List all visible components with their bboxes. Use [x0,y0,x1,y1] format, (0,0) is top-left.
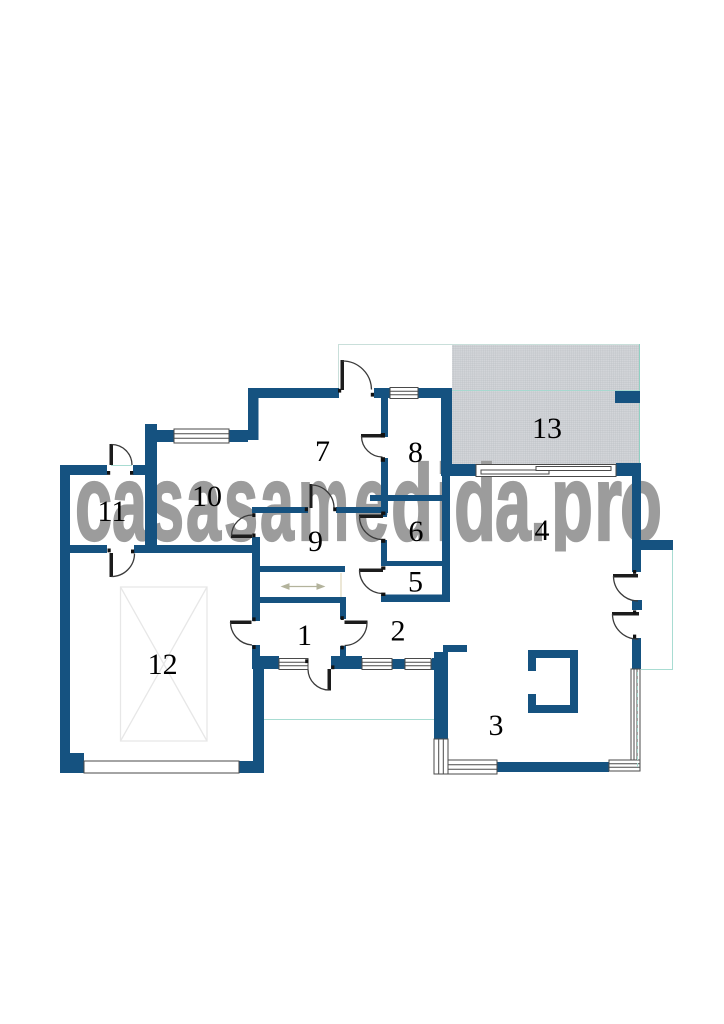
svg-text:2: 2 [391,615,406,648]
svg-text:7: 7 [315,435,330,468]
svg-text:11: 11 [98,495,127,528]
svg-text:4: 4 [535,514,550,547]
svg-text:a: a [495,442,532,563]
svg-text:d: d [454,442,496,563]
svg-text:5: 5 [408,566,423,599]
svg-text:p: p [551,442,593,563]
svg-text:12: 12 [148,648,178,681]
svg-text:1: 1 [297,619,312,652]
svg-text:10: 10 [192,480,222,513]
svg-text:9: 9 [308,525,323,558]
svg-text:a: a [260,442,295,563]
svg-text:r: r [594,442,622,563]
svg-text:8: 8 [408,436,423,469]
svg-text:13: 13 [532,412,562,445]
svg-text:3: 3 [489,709,504,742]
svg-text:6: 6 [409,515,424,548]
